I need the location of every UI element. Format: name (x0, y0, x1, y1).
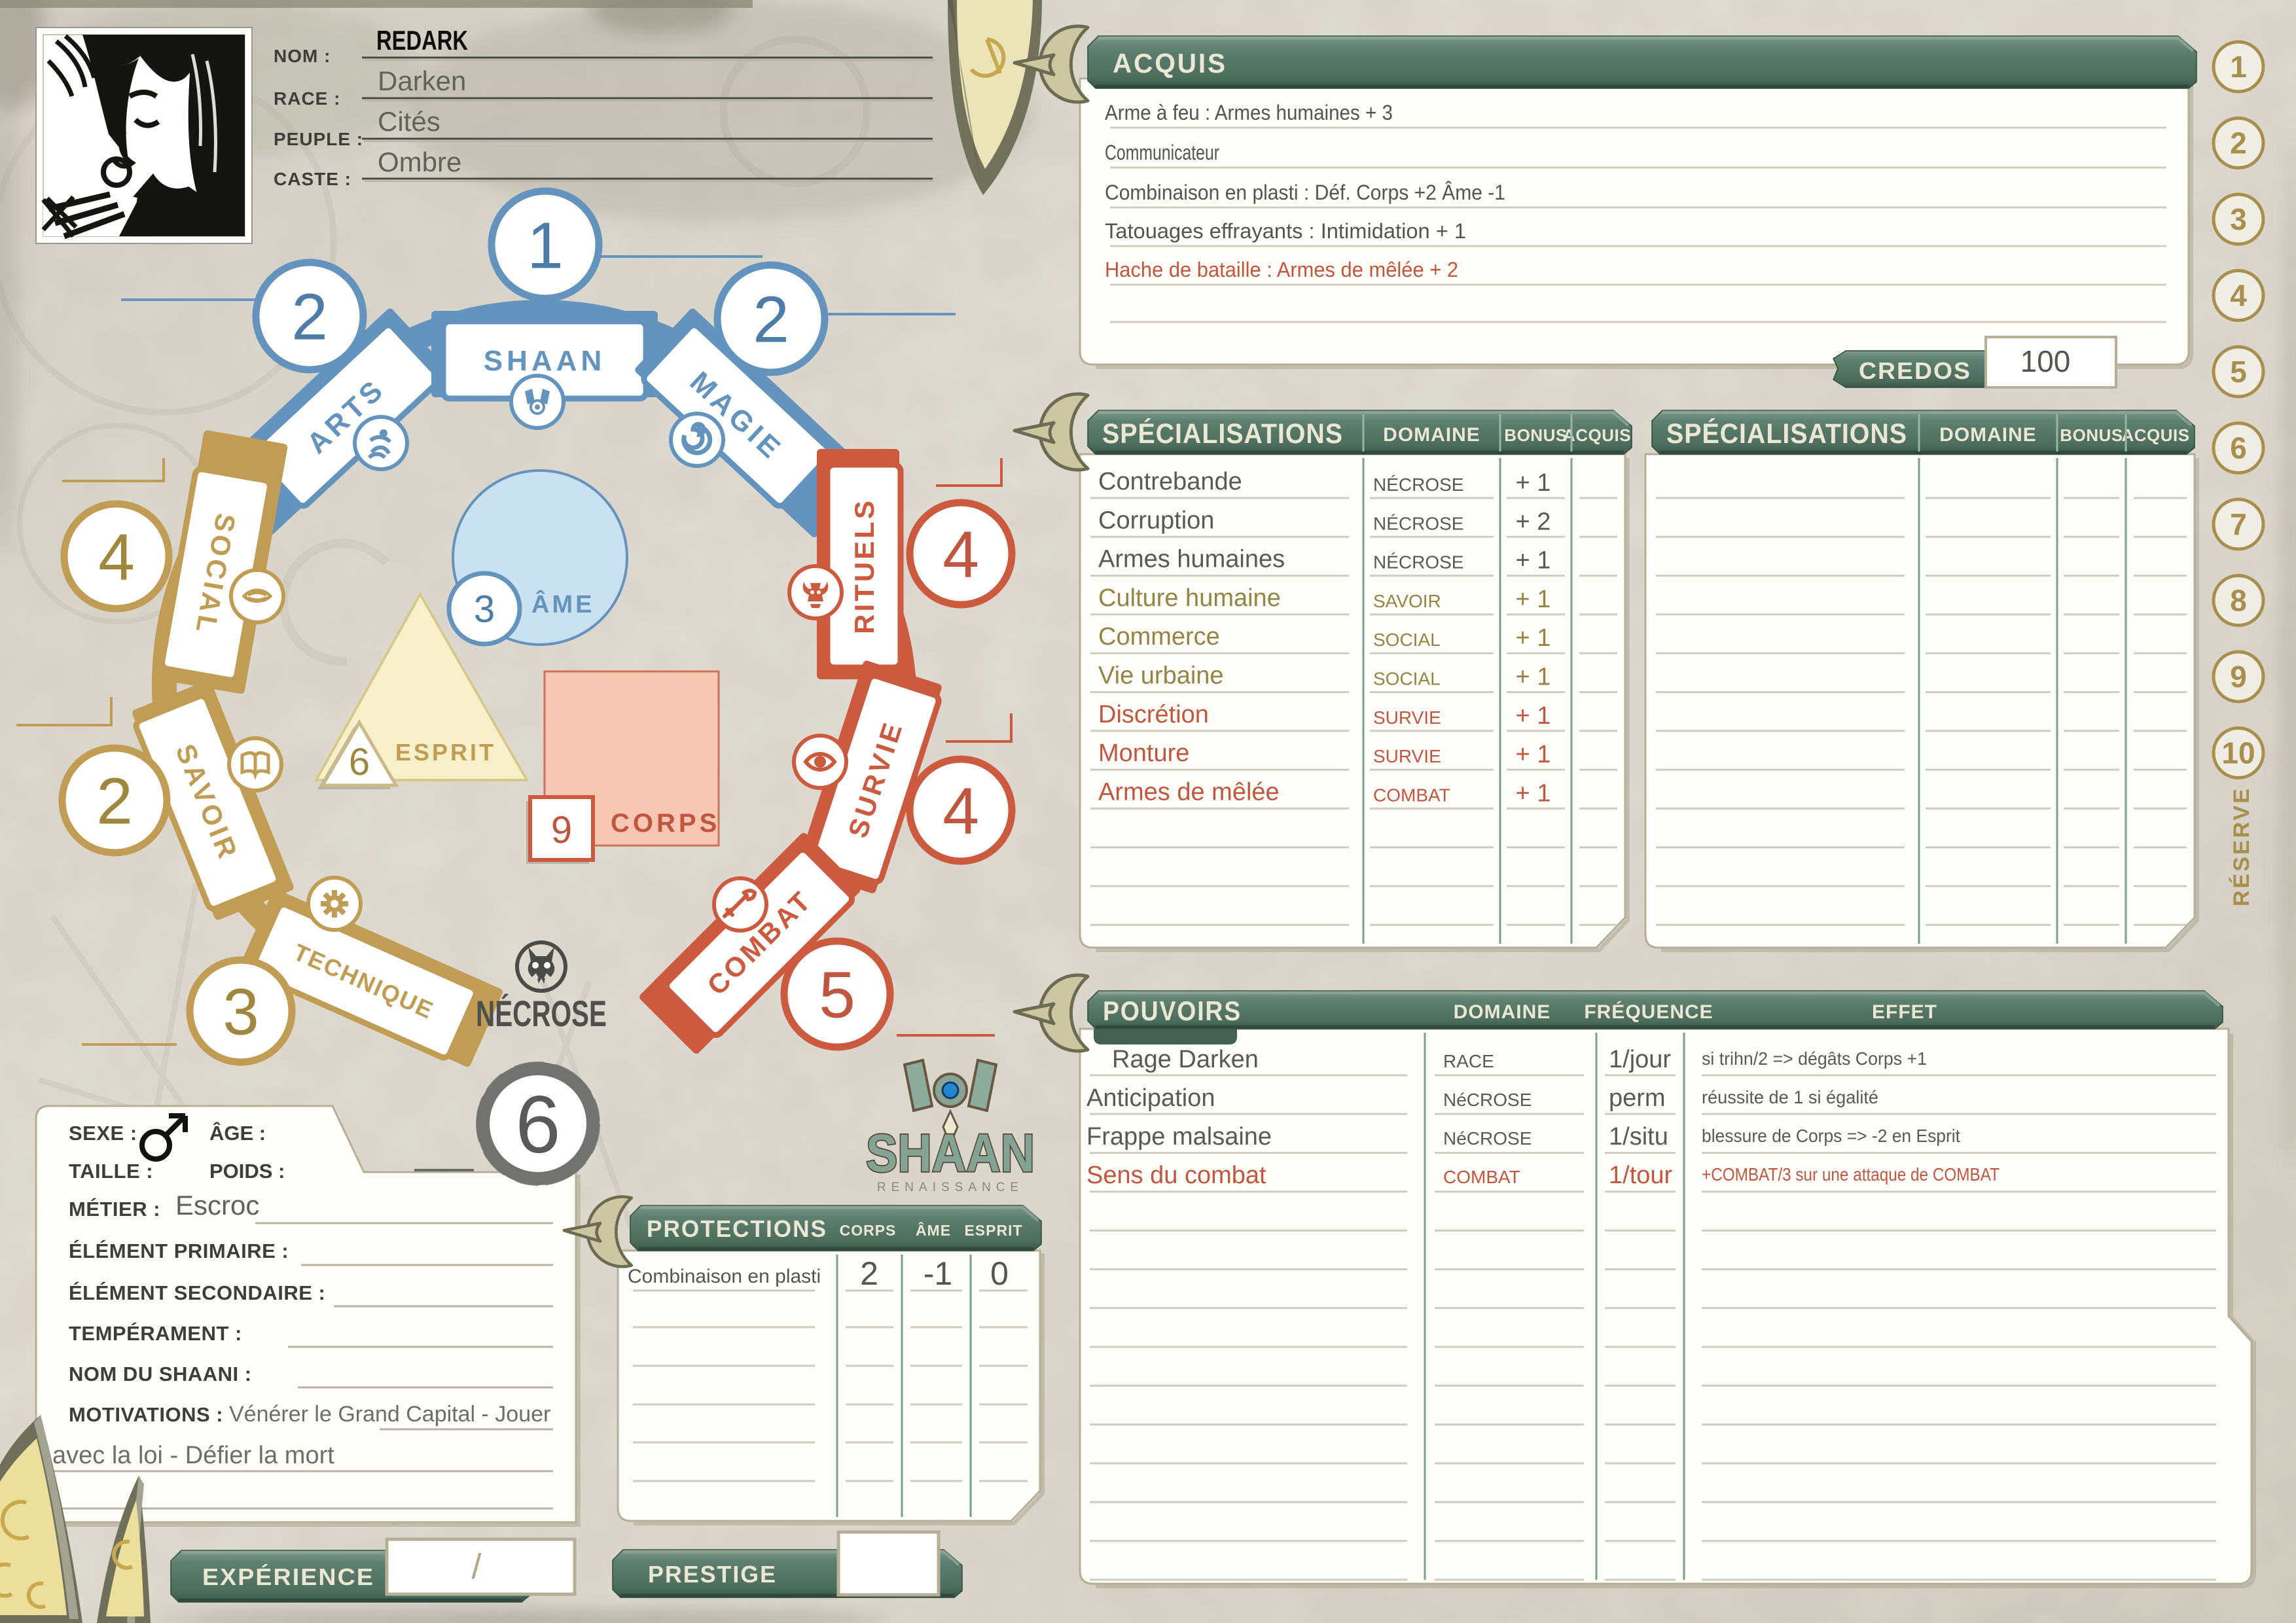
svg-text:Tatouages effrayants : Intimid: Tatouages effrayants : Intimidation + 1 (1105, 219, 1466, 243)
svg-text:ÉLÉMENT SECONDAIRE :: ÉLÉMENT SECONDAIRE : (69, 1281, 325, 1304)
svg-text:1/tour: 1/tour (1609, 1162, 1673, 1189)
svg-text:Combinaison en plasti: Combinaison en plasti (628, 1266, 821, 1287)
svg-text:ÂGE :: ÂGE : (209, 1121, 266, 1145)
svg-text:Rage Darken: Rage Darken (1112, 1046, 1259, 1073)
svg-text:NéCROSE: NéCROSE (1443, 1090, 1532, 1110)
svg-text:9: 9 (551, 809, 572, 851)
svg-text:Vie urbaine: Vie urbaine (1098, 662, 1224, 690)
svg-text:+ 2: + 2 (1516, 508, 1551, 535)
svg-text:10: 10 (2221, 736, 2255, 770)
svg-text:100: 100 (2020, 344, 2071, 378)
svg-text:perm: perm (1609, 1084, 1666, 1112)
svg-text:FRÉQUENCE: FRÉQUENCE (1584, 1001, 1713, 1023)
svg-text:SURVIE: SURVIE (1373, 746, 1441, 766)
svg-text:1/jour: 1/jour (1609, 1046, 1671, 1073)
svg-text:5: 5 (2230, 355, 2247, 389)
svg-text:EXPÉRIENCE: EXPÉRIENCE (202, 1563, 374, 1590)
svg-text:CREDOS: CREDOS (1859, 357, 1971, 384)
svg-text:Ombre: Ombre (378, 147, 461, 177)
svg-text:Escroc: Escroc (175, 1190, 259, 1221)
svg-text:SOCIAL: SOCIAL (1373, 630, 1441, 650)
svg-text:Communicateur: Communicateur (1105, 141, 1219, 164)
svg-text:2: 2 (753, 283, 789, 357)
svg-text:SHAAN: SHAAN (866, 1124, 1035, 1183)
svg-text:+ 1: + 1 (1516, 741, 1551, 768)
svg-text:Monture: Monture (1098, 740, 1189, 767)
svg-text:Corruption: Corruption (1098, 507, 1214, 534)
svg-text:MOTIVATIONS :: MOTIVATIONS : (69, 1403, 223, 1426)
svg-text:4: 4 (98, 521, 135, 594)
svg-text:ACQUIS: ACQUIS (1563, 425, 1631, 445)
svg-text:SEXE :: SEXE : (69, 1122, 137, 1145)
svg-text:Anticipation: Anticipation (1086, 1084, 1215, 1112)
svg-text:/: / (471, 1547, 481, 1586)
svg-text:PROTECTIONS: PROTECTIONS (647, 1215, 827, 1242)
svg-text:SURVIE: SURVIE (1373, 707, 1441, 728)
svg-text:+ 1: + 1 (1516, 664, 1551, 691)
svg-text:ESPRIT: ESPRIT (964, 1222, 1022, 1239)
svg-text:NÉCROSE: NÉCROSE (1373, 552, 1463, 573)
svg-text:Darken: Darken (378, 65, 466, 96)
svg-text:COMBAT: COMBAT (1443, 1167, 1520, 1187)
svg-text:TEMPÉRAMENT :: TEMPÉRAMENT : (69, 1322, 242, 1345)
svg-text:PRESTIGE: PRESTIGE (648, 1561, 777, 1588)
svg-text:EFFET: EFFET (1872, 1001, 1937, 1023)
svg-text:3: 3 (223, 976, 259, 1049)
svg-text:NOM :: NOM : (274, 46, 331, 66)
svg-text:BONUS: BONUS (1504, 425, 1567, 445)
svg-text:SOCIAL: SOCIAL (1373, 669, 1441, 689)
svg-text:ÉLÉMENT PRIMAIRE :: ÉLÉMENT PRIMAIRE : (69, 1240, 289, 1262)
svg-text:2: 2 (860, 1255, 878, 1292)
svg-text:Vénérer le Grand Capital - Jou: Vénérer le Grand Capital - Jouer (229, 1402, 550, 1427)
svg-text:4: 4 (2230, 279, 2247, 313)
svg-text:7: 7 (2230, 507, 2247, 541)
svg-text:POUVOIRS: POUVOIRS (1103, 995, 1242, 1026)
svg-text:SAVOIR: SAVOIR (1373, 591, 1441, 611)
svg-text:Sens du combat: Sens du combat (1086, 1162, 1266, 1189)
svg-text:SHAAN: SHAAN (484, 345, 605, 377)
svg-text:NÉCROSE: NÉCROSE (1373, 474, 1463, 495)
svg-text:+COMBAT/3 sur une attaque de C: +COMBAT/3 sur une attaque de COMBAT (1702, 1164, 2000, 1185)
svg-text:POIDS :: POIDS : (209, 1160, 285, 1183)
svg-text:6: 6 (516, 1080, 561, 1170)
svg-text:5: 5 (819, 959, 855, 1032)
svg-text:CORPS: CORPS (611, 809, 720, 838)
svg-text:avec la loi - Défier la mort: avec la loi - Défier la mort (52, 1442, 334, 1469)
svg-text:9: 9 (2230, 660, 2247, 694)
svg-text:Armes de mêlée: Armes de mêlée (1098, 778, 1280, 806)
svg-text:RÉSERVE: RÉSERVE (2229, 787, 2254, 906)
svg-text:CASTE :: CASTE : (274, 169, 351, 189)
svg-text:RACE: RACE (1443, 1051, 1494, 1071)
svg-text:Culture humaine: Culture humaine (1098, 584, 1281, 612)
svg-text:4: 4 (942, 518, 979, 592)
svg-text:+ 1: + 1 (1516, 702, 1551, 730)
svg-text:NéCROSE: NéCROSE (1443, 1128, 1532, 1149)
svg-text:Armes humaines: Armes humaines (1098, 546, 1285, 573)
svg-text:SPÉCIALISATIONS: SPÉCIALISATIONS (1102, 418, 1343, 450)
svg-text:Combinaison en plasti : Déf. C: Combinaison en plasti : Déf. Corps +2 Âm… (1105, 181, 1505, 204)
svg-text:RACE :: RACE : (274, 88, 340, 109)
svg-text:1/situ: 1/situ (1609, 1123, 1668, 1150)
svg-text:ÂME: ÂME (531, 590, 594, 618)
svg-text:DOMAINE: DOMAINE (1939, 424, 2037, 446)
svg-text:4: 4 (942, 775, 979, 848)
svg-text:SPÉCIALISATIONS: SPÉCIALISATIONS (1666, 418, 1907, 450)
svg-text:COMBAT: COMBAT (1373, 785, 1450, 805)
svg-text:NOM DU SHAANI :: NOM DU SHAANI : (69, 1363, 252, 1385)
svg-text:BONUS: BONUS (2060, 425, 2123, 445)
svg-text:réussite de 1 si égalité: réussite de 1 si égalité (1702, 1087, 1878, 1107)
svg-text:ESPRIT: ESPRIT (395, 739, 496, 766)
svg-text:-1: -1 (924, 1255, 952, 1292)
svg-text:6: 6 (349, 741, 370, 783)
svg-text:+ 1: + 1 (1516, 624, 1551, 652)
svg-text:ACQUIS: ACQUIS (2121, 425, 2189, 445)
svg-text:DOMAINE: DOMAINE (1454, 1001, 1551, 1023)
svg-text:NÉCROSE: NÉCROSE (476, 993, 607, 1034)
svg-text:Cités: Cités (378, 106, 440, 137)
svg-text:6: 6 (2230, 431, 2247, 465)
svg-text:blessure de Corps => -2 en Esp: blessure de Corps => -2 en Esprit (1702, 1126, 1960, 1146)
svg-text:Contrebande: Contrebande (1098, 468, 1242, 495)
svg-text:Commerce: Commerce (1098, 623, 1220, 651)
svg-text:3: 3 (474, 588, 495, 631)
svg-text:Discrétion: Discrétion (1098, 701, 1209, 728)
svg-text:1: 1 (2230, 50, 2247, 84)
svg-text:PEUPLE :: PEUPLE : (274, 129, 363, 149)
svg-text:Hache de bataille : Armes de m: Hache de bataille : Armes de mêlée + 2 (1105, 258, 1458, 281)
svg-text:1: 1 (527, 209, 564, 283)
svg-text:3: 3 (2230, 202, 2247, 236)
svg-text:REDARK: REDARK (376, 25, 468, 56)
svg-text:+ 1: + 1 (1516, 547, 1551, 575)
svg-text:RENAISSANCE: RENAISSANCE (877, 1181, 1024, 1194)
svg-text:DOMAINE: DOMAINE (1383, 424, 1480, 446)
svg-text:2: 2 (291, 281, 328, 354)
svg-text:TAILLE :: TAILLE : (69, 1160, 153, 1183)
svg-text:+ 1: + 1 (1516, 469, 1551, 497)
svg-text:ACQUIS: ACQUIS (1113, 48, 1227, 79)
svg-text:2: 2 (2230, 126, 2247, 160)
svg-text:+ 1: + 1 (1516, 586, 1551, 613)
svg-text:ÂME: ÂME (916, 1221, 951, 1239)
svg-text:Frappe malsaine: Frappe malsaine (1086, 1123, 1272, 1150)
svg-text:+ 1: + 1 (1516, 779, 1551, 807)
svg-text:si trihn/2 => dégâts Corps +1: si trihn/2 => dégâts Corps +1 (1702, 1048, 1927, 1069)
svg-text:CORPS: CORPS (840, 1222, 897, 1239)
svg-text:0: 0 (990, 1255, 1009, 1292)
svg-text:2: 2 (96, 765, 133, 838)
svg-text:Arme à feu : Armes humaines +: Arme à feu : Armes humaines + 3 (1105, 101, 1393, 124)
svg-text:NÉCROSE: NÉCROSE (1373, 513, 1463, 533)
svg-text:MÉTIER :: MÉTIER : (69, 1198, 160, 1221)
svg-text:RITUELS: RITUELS (849, 498, 880, 634)
svg-text:8: 8 (2230, 584, 2247, 618)
